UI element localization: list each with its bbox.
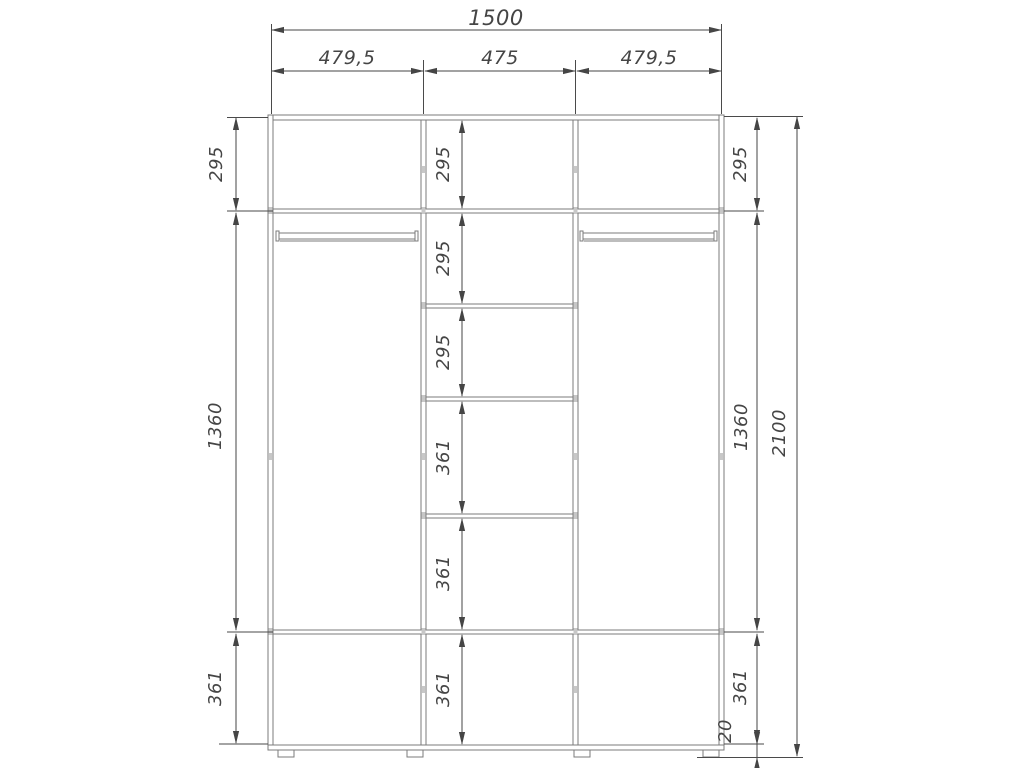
dim-label-plinth-20: 20 [715, 719, 736, 743]
dim-label-right-361: 361 [730, 669, 751, 705]
dim-label-center-295-1: 295 [433, 146, 454, 182]
dim-label-right-295: 295 [730, 146, 751, 182]
dim-label-center-295-2: 295 [433, 240, 454, 276]
rod-end-bracket [580, 231, 583, 241]
dim-label-total-width: 1500 [468, 6, 523, 30]
rod-end-bracket [276, 231, 279, 241]
foot [407, 750, 423, 757]
dim-label-center-361-1: 361 [433, 439, 454, 475]
hanging-rod-right [580, 231, 717, 241]
rod-end-bracket [714, 231, 717, 241]
center-shelf-2 [426, 397, 573, 401]
dim-label-left-1360: 1360 [205, 402, 226, 450]
foot [278, 750, 294, 757]
extension-lines [219, 24, 803, 758]
dim-label-center-361-3: 361 [433, 671, 454, 707]
shelf-top-full [273, 209, 719, 213]
rod-end-bracket [415, 231, 418, 241]
dim-label-section-width-center: 475 [481, 47, 519, 69]
center-shelf-1 [426, 304, 573, 308]
technical-drawing: 1500 479,5 475 479,5 295 1360 361 295 29… [0, 0, 1024, 768]
dim-label-section-width-left: 479,5 [319, 47, 376, 69]
dim-label-center-295-3: 295 [433, 334, 454, 370]
top-panel [268, 115, 724, 120]
dim-label-center-361-2: 361 [433, 555, 454, 591]
joint-marks [269, 166, 724, 693]
drawing-canvas: 1500 479,5 475 479,5 295 1360 361 295 29… [0, 0, 1024, 768]
foot [703, 750, 719, 757]
dim-label-total-height: 2100 [769, 409, 790, 457]
bottom-panel [268, 745, 724, 750]
rod-bar [582, 233, 715, 239]
cabinet-body [268, 115, 724, 757]
dim-label-section-width-right: 479,5 [621, 47, 678, 69]
dim-label-left-361: 361 [205, 670, 226, 706]
shelf-bottom-full [273, 630, 719, 634]
hanging-rod-left [276, 231, 418, 241]
foot [574, 750, 590, 757]
dim-label-right-1360: 1360 [731, 403, 752, 451]
center-shelf-3 [426, 514, 573, 518]
dim-label-left-295: 295 [206, 146, 227, 182]
rod-bar [278, 233, 416, 239]
